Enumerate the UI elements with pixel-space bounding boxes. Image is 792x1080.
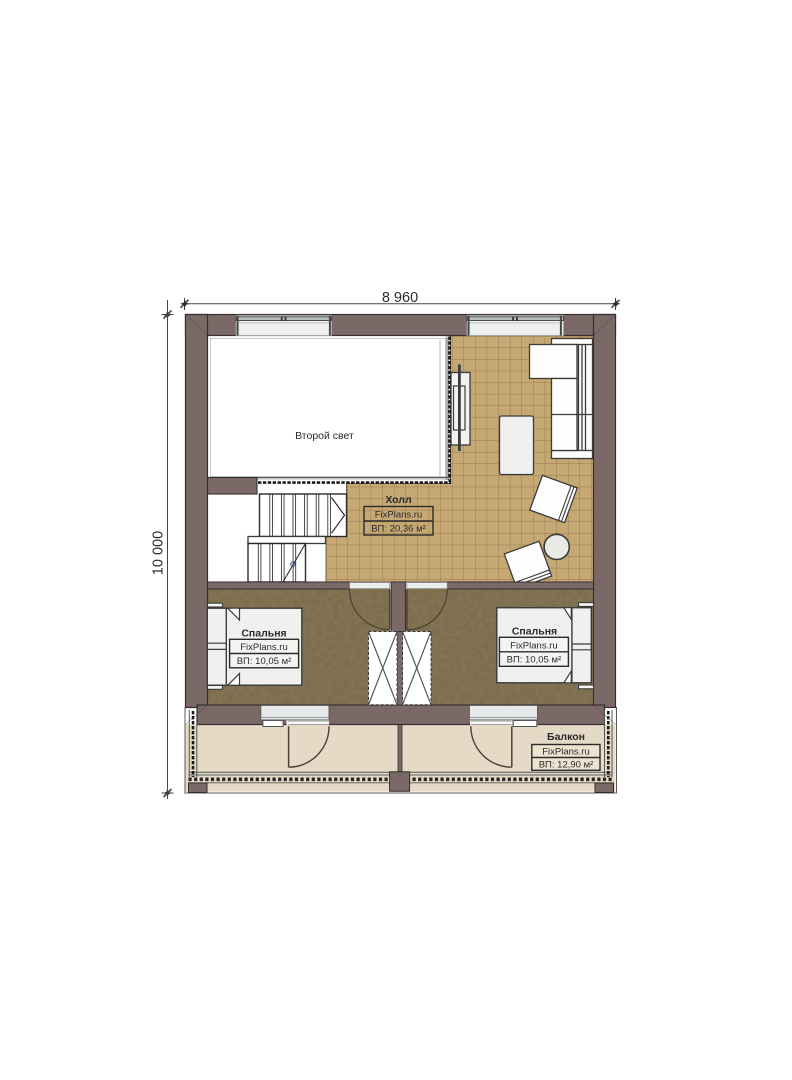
svg-text:ВП: 10,05 м²: ВП: 10,05 м²: [507, 655, 562, 666]
svg-text:Спальня: Спальня: [512, 626, 557, 638]
svg-text:ВП: 10,05 м²: ВП: 10,05 м²: [237, 656, 292, 667]
svg-text:ВП: 12,90 м²: ВП: 12,90 м²: [539, 760, 594, 771]
svg-text:Балкон: Балкон: [547, 731, 585, 743]
svg-text:FixPlans.ru: FixPlans.ru: [240, 642, 288, 653]
svg-text:FixPlans.ru: FixPlans.ru: [375, 510, 423, 521]
svg-text:FixPlans.ru: FixPlans.ru: [510, 640, 558, 651]
svg-text:Второй свет: Второй свет: [295, 430, 354, 442]
svg-text:ВП: 20,36 м²: ВП: 20,36 м²: [371, 524, 426, 535]
svg-text:FixPlans.ru: FixPlans.ru: [542, 747, 590, 758]
svg-text:Холл: Холл: [385, 494, 411, 506]
svg-text:8 960: 8 960: [382, 290, 418, 306]
svg-text:10 000: 10 000: [151, 531, 167, 575]
svg-text:Спальня: Спальня: [241, 628, 286, 640]
